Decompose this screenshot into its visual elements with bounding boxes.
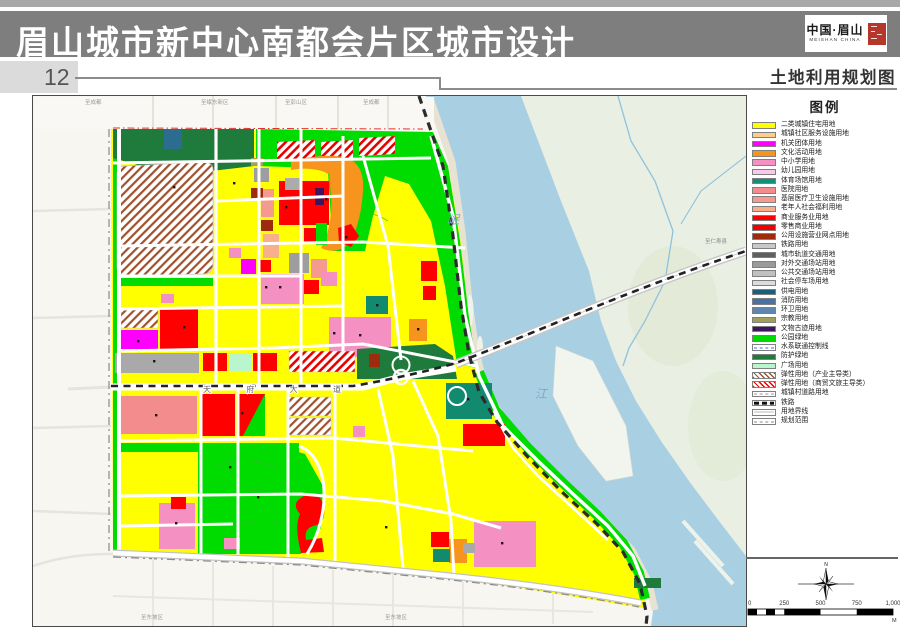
legend-swatch bbox=[752, 132, 776, 139]
legend-label: 二类城镇住宅用地 bbox=[781, 122, 835, 129]
legend-item: 宗教用地 bbox=[752, 315, 898, 324]
legend-swatch bbox=[752, 178, 776, 185]
legend-label: 规划范围 bbox=[781, 418, 808, 425]
legend-item: 弹性用地（商贸文旅主导类） bbox=[752, 380, 898, 389]
legend-item: 文物古迹用地 bbox=[752, 325, 898, 334]
north-label: N bbox=[824, 562, 828, 568]
legend-item: 弹性用地（产业主导类） bbox=[752, 371, 898, 380]
legend-item: 铁路 bbox=[752, 399, 898, 408]
legend-swatch bbox=[752, 169, 776, 176]
legend-label: 宗教用地 bbox=[781, 316, 808, 323]
legend-label: 弹性用地（商贸文旅主导类） bbox=[781, 381, 869, 388]
rail-transit-strip bbox=[115, 353, 199, 373]
legend-swatch bbox=[752, 150, 776, 157]
legend-swatch bbox=[752, 418, 776, 425]
scale-unit: M bbox=[892, 618, 897, 624]
label-to-chengdu-left: 至成都 bbox=[85, 98, 102, 106]
map-canvas: 至成都 至岷东新区 至彭山区 至成都 至仁寿县 至东坡区 至东坡区 岷 江 天府… bbox=[33, 96, 746, 626]
legend-swatch bbox=[752, 270, 776, 277]
plaza-parcel bbox=[229, 353, 251, 371]
scale-tick: 0 bbox=[748, 601, 752, 607]
logo-en-text: MEISHAN CHINA bbox=[809, 38, 860, 43]
logo-cn-text: 中国·眉山 bbox=[807, 24, 864, 36]
legend-item: 公园绿地 bbox=[752, 334, 898, 343]
legend-label: 文化活动用地 bbox=[781, 150, 822, 157]
legend-label: 弹性用地（产业主导类） bbox=[781, 372, 856, 379]
legend-item: 幼儿园用地 bbox=[752, 167, 898, 176]
legend-swatch bbox=[752, 159, 776, 166]
legend-label: 水系联通控制线 bbox=[781, 344, 829, 351]
legend-item: 老年人社会福利用地 bbox=[752, 204, 898, 213]
legend-label: 消防用地 bbox=[781, 298, 808, 305]
legend-label: 基层医疗卫生设施用地 bbox=[781, 196, 849, 203]
legend-swatch bbox=[752, 344, 776, 351]
legend-item: 零售商业用地 bbox=[752, 223, 898, 232]
legend-item: 城镇村道路用地 bbox=[752, 389, 898, 398]
legend-swatch bbox=[752, 307, 776, 314]
legend-swatch bbox=[752, 252, 776, 259]
legend-label: 公园绿地 bbox=[781, 335, 808, 342]
legend-items: 二类城镇住宅用地城镇社区服务设施用地机关团体用地文化活动用地中小学用地幼儿园用地… bbox=[752, 121, 898, 426]
scale-bar: 02505007501,000 M bbox=[744, 597, 900, 625]
sheet-title: 土地利用规划图 bbox=[696, 64, 896, 88]
legend-item: 机关团体用地 bbox=[752, 140, 898, 149]
legend-item: 商业服务业用地 bbox=[752, 214, 898, 223]
label-to-dongpo-2: 至东坡区 bbox=[385, 613, 408, 621]
legend-title: 图例 bbox=[752, 96, 898, 116]
legend-swatch bbox=[752, 317, 776, 324]
legend-swatch bbox=[752, 206, 776, 213]
legend-swatch bbox=[752, 363, 776, 370]
legend-swatch bbox=[752, 243, 776, 250]
legend-swatch bbox=[752, 141, 776, 148]
compass-rose bbox=[814, 568, 838, 600]
legend-label: 供电用地 bbox=[781, 289, 808, 296]
legend-swatch bbox=[752, 335, 776, 342]
legend-label: 商业服务业用地 bbox=[781, 215, 829, 222]
label-to-dongpo-1: 至东坡区 bbox=[141, 613, 164, 621]
scale-tick: 1,000 bbox=[885, 601, 900, 607]
header-rule-lower bbox=[439, 88, 897, 90]
legend-item: 基层医疗卫生设施用地 bbox=[752, 195, 898, 204]
legend-item: 体育场馆用地 bbox=[752, 177, 898, 186]
legend-label: 机关团体用地 bbox=[781, 141, 822, 148]
legend-label: 医院用地 bbox=[781, 187, 808, 194]
legend-item: 二类城镇住宅用地 bbox=[752, 121, 898, 130]
legend-item: 环卫用地 bbox=[752, 306, 898, 315]
legend-label: 社会停车场用地 bbox=[781, 279, 829, 286]
legend-item: 城市轨道交通用地 bbox=[752, 251, 898, 260]
legend-item: 水系联通控制线 bbox=[752, 343, 898, 352]
legend-item: 对外交通场站用地 bbox=[752, 260, 898, 269]
legend-swatch bbox=[752, 233, 776, 240]
legend-swatch bbox=[752, 289, 776, 296]
legend-item: 文化活动用地 bbox=[752, 149, 898, 158]
land-use-map: 至成都 至岷东新区 至彭山区 至成都 至仁寿县 至东坡区 至东坡区 岷 江 天府… bbox=[32, 95, 747, 627]
page-number: 12 bbox=[0, 61, 78, 93]
legend-item: 社会停车场用地 bbox=[752, 278, 898, 287]
legend-label: 对外交通场站用地 bbox=[781, 261, 835, 268]
header-rule bbox=[75, 77, 440, 79]
school-parcel bbox=[261, 274, 304, 304]
scale-tick: 750 bbox=[852, 601, 863, 607]
legend-label: 公共交通场站用地 bbox=[781, 270, 835, 277]
label-to-chengdu-right: 至成都 bbox=[363, 98, 380, 106]
legend-label: 幼儿园用地 bbox=[781, 168, 815, 175]
legend-swatch bbox=[752, 196, 776, 203]
legend-label: 用地界线 bbox=[781, 409, 808, 416]
header-band: 眉山城市新中心南都会片区城市设计 中国·眉山 MEISHAN CHINA bbox=[0, 11, 900, 57]
legend-swatch bbox=[752, 261, 776, 268]
legend-label: 零售商业用地 bbox=[781, 224, 822, 231]
label-river-jiang: 江 bbox=[535, 387, 549, 401]
legend-item: 铁路用地 bbox=[752, 241, 898, 250]
legend-swatch bbox=[752, 280, 776, 287]
legend-item: 公用设施营业网点用地 bbox=[752, 232, 898, 241]
legend-label: 城镇社区服务设施用地 bbox=[781, 131, 849, 138]
legend-swatch bbox=[752, 372, 776, 379]
legend-label: 广场用地 bbox=[781, 363, 808, 370]
legend-item: 防护绿地 bbox=[752, 352, 898, 361]
label-to-pengshan: 至彭山区 bbox=[285, 98, 308, 106]
legend-item: 公共交通场站用地 bbox=[752, 269, 898, 278]
utility-parcel bbox=[164, 129, 182, 149]
scale-tick: 500 bbox=[815, 601, 826, 607]
legend-swatch bbox=[752, 224, 776, 231]
legend-label: 铁路 bbox=[781, 400, 795, 407]
legend-item: 医院用地 bbox=[752, 186, 898, 195]
legend-label: 城镇村道路用地 bbox=[781, 390, 829, 397]
legend-label: 文物古迹用地 bbox=[781, 326, 822, 333]
legend-label: 防护绿地 bbox=[781, 353, 808, 360]
legend-swatch bbox=[752, 326, 776, 333]
legend-label: 公用设施营业网点用地 bbox=[781, 233, 849, 240]
label-to-renshou: 至仁寿县 bbox=[705, 237, 728, 245]
legend-item: 城镇社区服务设施用地 bbox=[752, 130, 898, 139]
government-parcel bbox=[241, 259, 256, 274]
label-river-min: 岷 bbox=[447, 213, 461, 227]
legend-swatch bbox=[752, 409, 776, 416]
legend-item: 广场用地 bbox=[752, 362, 898, 371]
page-title: 眉山城市新中心南都会片区城市设计 bbox=[16, 16, 576, 64]
seal-icon bbox=[868, 23, 886, 45]
top-gray-strip bbox=[0, 0, 900, 7]
flexible-industry-zone bbox=[117, 162, 213, 276]
legend-item: 消防用地 bbox=[752, 297, 898, 306]
legend-panel: 图例 二类城镇住宅用地城镇社区服务设施用地机关团体用地文化活动用地中小学用地幼儿… bbox=[752, 96, 898, 426]
legend-swatch bbox=[752, 187, 776, 194]
meishan-logo: 中国·眉山 MEISHAN CHINA bbox=[805, 15, 887, 52]
legend-label: 城市轨道交通用地 bbox=[781, 252, 835, 259]
legend-item: 用地界线 bbox=[752, 408, 898, 417]
scale-tick: 250 bbox=[779, 601, 790, 607]
legend-item: 供电用地 bbox=[752, 288, 898, 297]
plan-sheet: 眉山城市新中心南都会片区城市设计 中国·眉山 MEISHAN CHINA 12 … bbox=[0, 0, 900, 636]
legend-label: 中小学用地 bbox=[781, 159, 815, 166]
legend-swatch bbox=[752, 122, 776, 129]
legend-swatch bbox=[752, 400, 776, 407]
legend-label: 体育场馆用地 bbox=[781, 178, 822, 185]
legend-label: 环卫用地 bbox=[781, 307, 808, 314]
legend-swatch bbox=[752, 381, 776, 388]
legend-label: 老年人社会福利用地 bbox=[781, 205, 842, 212]
legend-label: 铁路用地 bbox=[781, 242, 808, 249]
label-to-mindong: 至岷东新区 bbox=[201, 98, 229, 106]
school-parcel-se bbox=[474, 521, 536, 567]
legend-swatch bbox=[752, 215, 776, 222]
legend-swatch bbox=[752, 298, 776, 305]
legend-swatch bbox=[752, 391, 776, 398]
legend-item: 规划范围 bbox=[752, 417, 898, 426]
legend-item: 中小学用地 bbox=[752, 158, 898, 167]
legend-swatch bbox=[752, 354, 776, 361]
